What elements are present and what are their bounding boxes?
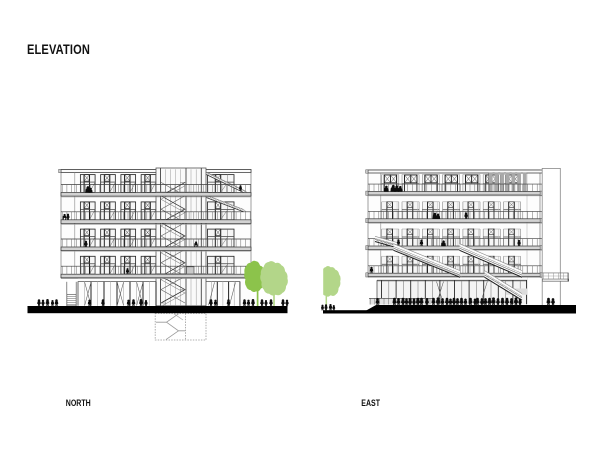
svg-text:EAST: EAST [361,398,380,408]
svg-text:ELEVATION: ELEVATION [27,41,90,58]
svg-text:NORTH: NORTH [66,398,91,408]
